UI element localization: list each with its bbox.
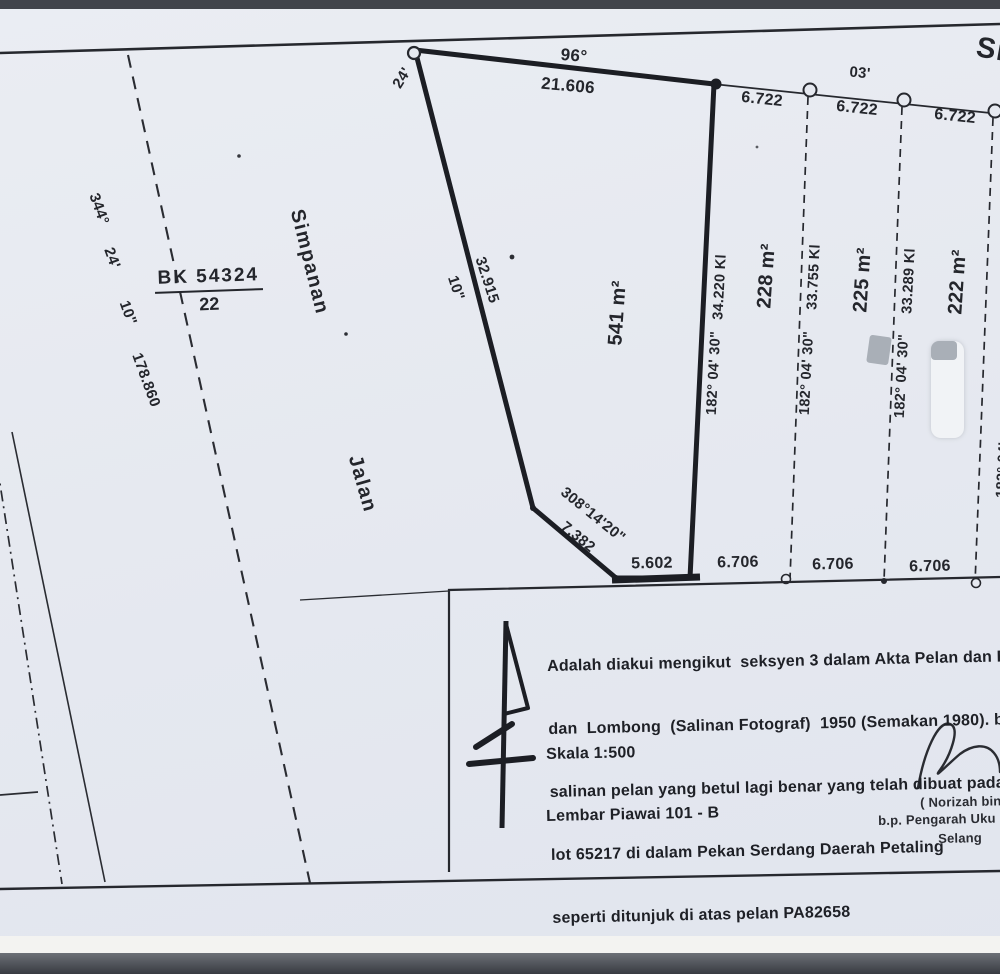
divider-distance-label: 34.220 Kl [710,254,729,320]
frame-top-line [0,24,1000,53]
statement-line: lot 65217 di dalam Pekan Serdang Daerah … [551,835,1000,866]
divider-distance-label: 33.755 Kl [804,244,823,310]
bottom-road-line [300,591,449,600]
lot-reference-number: BK 54324 [154,264,262,294]
road-reserve-dashed-line [128,55,310,883]
survey-station-circle [898,94,911,107]
divider-distance-label: 33.289 Kl [899,248,918,314]
signatory-name: ( Norizah bin [920,793,1000,810]
parcel-divider-line-4 [975,118,993,584]
statement-line: dan Lombong (Salinan Fotograf) 1950 (Sem… [548,709,1000,740]
signatory-title: b.p. Pengarah Uku [878,811,996,828]
parcel-corner-dot [711,79,722,90]
parcel-area-label: 228 m² [753,243,780,310]
signatory-region: Selang [938,830,982,846]
ink-speck [510,255,515,260]
lot-reference-sub: 22 [155,290,263,317]
main-parcel-bottom-thick [612,577,700,580]
north-arrow-flag [504,624,528,714]
north-arrow-diagonal [476,724,512,747]
bottom-distance-label: 6.706 [909,558,951,577]
statement-line: Adalah diakui mengikut seksyen 3 dalam A… [547,646,1000,677]
parcel-area-label: 222 m² [944,249,971,316]
parcel-corner-dot [530,505,536,511]
scale-label: Skala 1:500 [546,744,636,764]
survey-plan-photo: 96° 21.606 24' 03' 6.722 6.722 6.722 Si … [0,0,1000,974]
certification-statement: Adalah diakui mengikut seksyen 3 dalam A… [546,604,1000,971]
parcel-area-label: 225 m² [849,247,876,314]
bottom-distance-label: 5.602 [631,555,673,574]
ink-speck [344,332,348,336]
ink-speck [237,154,241,158]
lot-reference: BK 54324 22 [154,264,263,317]
survey-station-circle [989,105,1000,118]
main-parcel-area-label: 541 m² [604,280,631,347]
photo-edge-top [0,0,1000,9]
paper-edge-bottom [0,936,1000,953]
top-bearing-label: 96° [560,45,588,67]
survey-station-circle [804,84,817,97]
statement-line: seperti ditunjuk di atas pelan PA82658 [552,898,1000,929]
bottom-distance-label: 6.706 [717,554,759,573]
sheet-label: Lembar Piawai 101 - B [546,804,720,826]
road-label-partial: Si [974,31,1000,69]
parcel-corner-dot [613,575,619,581]
parcel-corner-circle [408,47,420,59]
redaction-patch-gray [866,335,892,366]
left-connector-line [0,792,38,795]
bottom-junction-circle [972,579,981,588]
photo-edge-bottom [0,953,1000,974]
north-arrow-crossbar [469,758,533,764]
north-arrow-icon [502,621,506,828]
bottom-distance-label: 6.706 [812,556,854,575]
left-dash-dot-line [0,445,62,884]
ink-speck [756,146,759,149]
right-bearing-min-label: 03' [849,64,872,83]
left-boundary-line [12,432,105,882]
redaction-patch-gray [931,341,957,360]
